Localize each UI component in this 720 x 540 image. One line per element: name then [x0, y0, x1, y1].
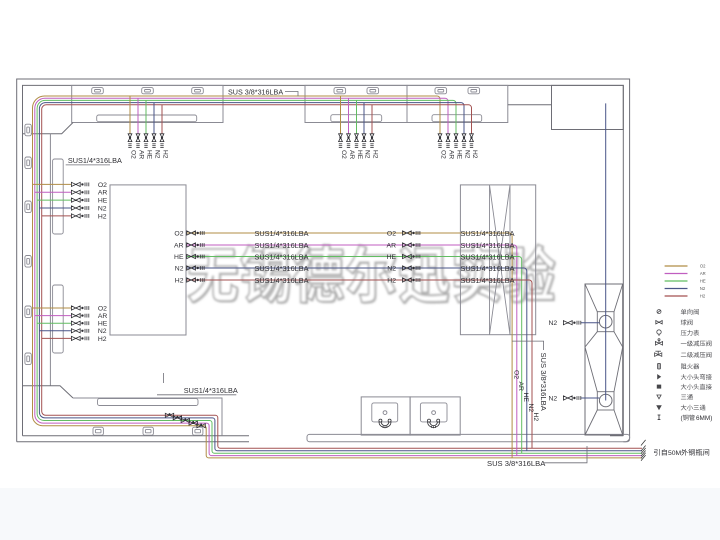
svg-text:HE: HE — [456, 150, 463, 160]
svg-text:N2: N2 — [154, 150, 161, 159]
svg-text:N2: N2 — [464, 150, 471, 159]
svg-text:HE: HE — [387, 254, 397, 261]
svg-text:SUS1/4*316LBA: SUS1/4*316LBA — [255, 241, 309, 250]
svg-text:50M: 50M — [668, 450, 682, 457]
svg-text:AR: AR — [138, 150, 145, 159]
svg-text:O2: O2 — [98, 182, 107, 189]
svg-text:N2: N2 — [387, 265, 396, 272]
svg-text:AR: AR — [348, 150, 355, 159]
svg-text:O2: O2 — [174, 230, 183, 237]
svg-text:N2: N2 — [98, 328, 107, 335]
svg-text:H2: H2 — [700, 294, 706, 299]
svg-text:H2: H2 — [98, 213, 107, 220]
svg-text:H2: H2 — [175, 277, 184, 284]
svg-text:HE: HE — [522, 393, 529, 403]
svg-text:AR: AR — [174, 242, 184, 249]
svg-text:O2: O2 — [512, 370, 519, 379]
svg-text:AR: AR — [448, 150, 455, 159]
svg-text:SUS1/4*316LBA: SUS1/4*316LBA — [461, 264, 515, 273]
svg-text:N2: N2 — [364, 150, 371, 159]
svg-text:N2: N2 — [549, 395, 558, 402]
svg-text:O2: O2 — [387, 230, 396, 237]
svg-text:SUS1/4*316LBA: SUS1/4*316LBA — [461, 276, 515, 285]
svg-text:SUS1/4*316LBA: SUS1/4*316LBA — [68, 156, 122, 165]
svg-text:AR: AR — [700, 271, 706, 276]
svg-text:O2: O2 — [340, 150, 347, 159]
svg-text:SUS 3/8*316LBA: SUS 3/8*316LBA — [487, 459, 546, 468]
svg-text:HE: HE — [700, 279, 706, 284]
svg-text:H2: H2 — [162, 150, 169, 159]
svg-text:SUS1/4*316LBA: SUS1/4*316LBA — [255, 229, 309, 238]
svg-text:H2: H2 — [372, 150, 379, 159]
svg-text:SUS1/4*316LBA: SUS1/4*316LBA — [461, 229, 515, 238]
svg-text:HE: HE — [98, 321, 108, 328]
svg-text:H2: H2 — [471, 150, 478, 159]
svg-text:N2: N2 — [98, 205, 107, 212]
svg-text:AR: AR — [517, 382, 524, 392]
svg-text:SUS1/4*316LBA: SUS1/4*316LBA — [255, 253, 309, 262]
svg-text:6MM): 6MM) — [696, 415, 712, 422]
svg-text:AR: AR — [98, 190, 108, 197]
svg-text:AR: AR — [98, 313, 108, 320]
svg-text:SUS1/4*316LBA: SUS1/4*316LBA — [255, 264, 309, 273]
svg-text:O2: O2 — [700, 264, 706, 269]
svg-text:SUS1/4*316LBA: SUS1/4*316LBA — [255, 276, 309, 285]
svg-text:O2: O2 — [440, 150, 447, 159]
svg-text:N2: N2 — [700, 286, 706, 291]
svg-text:AR: AR — [387, 242, 397, 249]
svg-text:HE: HE — [174, 254, 184, 261]
svg-text:SUS 3/8*316LBA: SUS 3/8*316LBA — [539, 353, 548, 412]
svg-text:SUS1/4*316LBA: SUS1/4*316LBA — [461, 241, 515, 250]
svg-text:O2: O2 — [98, 305, 107, 312]
svg-text:HE: HE — [356, 150, 363, 160]
svg-text:N2: N2 — [527, 404, 534, 413]
svg-text:SUS 3/8*316LBA: SUS 3/8*316LBA — [228, 87, 283, 96]
svg-text:N2: N2 — [175, 265, 184, 272]
svg-text:HE: HE — [98, 198, 108, 205]
svg-text:H2: H2 — [98, 336, 107, 343]
svg-text:N2: N2 — [549, 320, 558, 327]
svg-text:HE: HE — [146, 150, 153, 160]
svg-text:SUS1/4*316LBA: SUS1/4*316LBA — [461, 253, 515, 262]
svg-text:SUS1/4*316LBA: SUS1/4*316LBA — [184, 386, 238, 395]
svg-text:H2: H2 — [532, 413, 539, 422]
svg-text:H2: H2 — [387, 277, 396, 284]
svg-text:O2: O2 — [130, 150, 137, 159]
